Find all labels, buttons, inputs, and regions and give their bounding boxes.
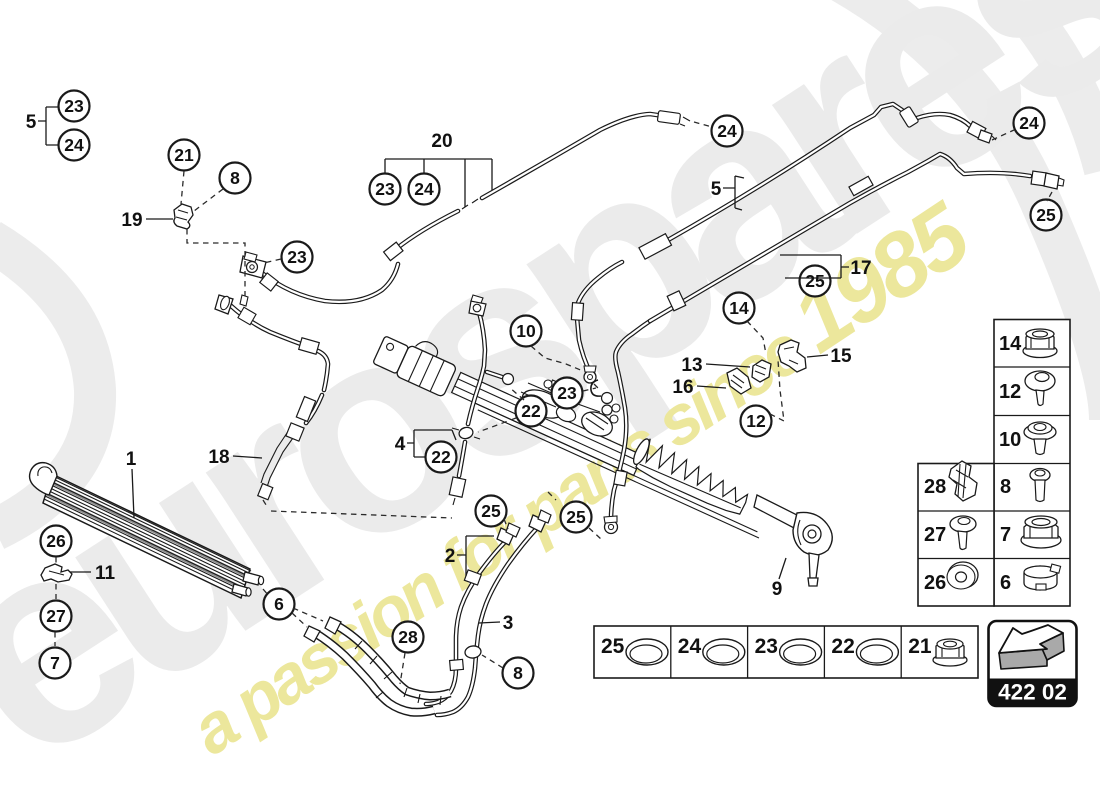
svg-text:24: 24	[64, 135, 84, 155]
svg-text:10: 10	[999, 429, 1021, 451]
svg-text:25: 25	[481, 501, 501, 521]
svg-text:1: 1	[126, 449, 137, 470]
svg-text:27: 27	[924, 524, 946, 546]
svg-text:5: 5	[711, 179, 722, 200]
svg-text:28: 28	[398, 627, 418, 647]
svg-text:25: 25	[601, 635, 625, 658]
svg-text:25: 25	[1036, 205, 1056, 225]
svg-text:17: 17	[850, 258, 871, 279]
svg-text:23: 23	[375, 179, 395, 199]
svg-text:2: 2	[445, 546, 456, 567]
svg-text:20: 20	[431, 131, 452, 152]
svg-text:21: 21	[174, 145, 194, 165]
svg-text:8: 8	[1000, 476, 1011, 498]
svg-text:14: 14	[999, 333, 1022, 355]
svg-text:24: 24	[1019, 113, 1039, 133]
svg-text:3: 3	[503, 613, 514, 634]
svg-text:22: 22	[521, 401, 541, 421]
svg-text:27: 27	[46, 606, 65, 626]
svg-text:23: 23	[755, 635, 778, 658]
svg-text:12: 12	[999, 381, 1021, 403]
svg-text:22: 22	[831, 635, 854, 658]
svg-text:7: 7	[1000, 524, 1011, 546]
svg-text:19: 19	[121, 210, 142, 231]
svg-text:16: 16	[672, 377, 693, 398]
svg-text:23: 23	[64, 96, 84, 116]
svg-text:8: 8	[230, 168, 240, 188]
svg-text:15: 15	[830, 346, 852, 367]
svg-text:25: 25	[805, 271, 825, 291]
svg-text:9: 9	[772, 579, 783, 600]
svg-text:6: 6	[274, 594, 284, 614]
svg-text:28: 28	[924, 476, 946, 498]
svg-text:24: 24	[414, 179, 434, 199]
svg-text:4: 4	[395, 434, 406, 455]
svg-text:6: 6	[1000, 572, 1011, 594]
svg-text:23: 23	[287, 247, 307, 267]
svg-text:21: 21	[908, 635, 932, 658]
svg-text:14: 14	[729, 298, 749, 318]
svg-text:26: 26	[924, 572, 946, 594]
svg-text:22: 22	[431, 447, 451, 467]
svg-text:26: 26	[46, 531, 66, 551]
svg-text:8: 8	[513, 663, 523, 683]
svg-text:422 02: 422 02	[998, 680, 1067, 705]
svg-text:13: 13	[681, 355, 702, 376]
svg-text:24: 24	[717, 121, 737, 141]
svg-text:12: 12	[746, 411, 766, 431]
svg-text:24: 24	[678, 635, 702, 658]
svg-text:5: 5	[26, 112, 37, 133]
svg-text:11: 11	[95, 563, 116, 584]
svg-text:18: 18	[208, 447, 229, 468]
svg-text:10: 10	[516, 321, 536, 341]
svg-text:23: 23	[557, 383, 577, 403]
svg-text:25: 25	[566, 507, 586, 527]
svg-text:7: 7	[50, 653, 60, 673]
